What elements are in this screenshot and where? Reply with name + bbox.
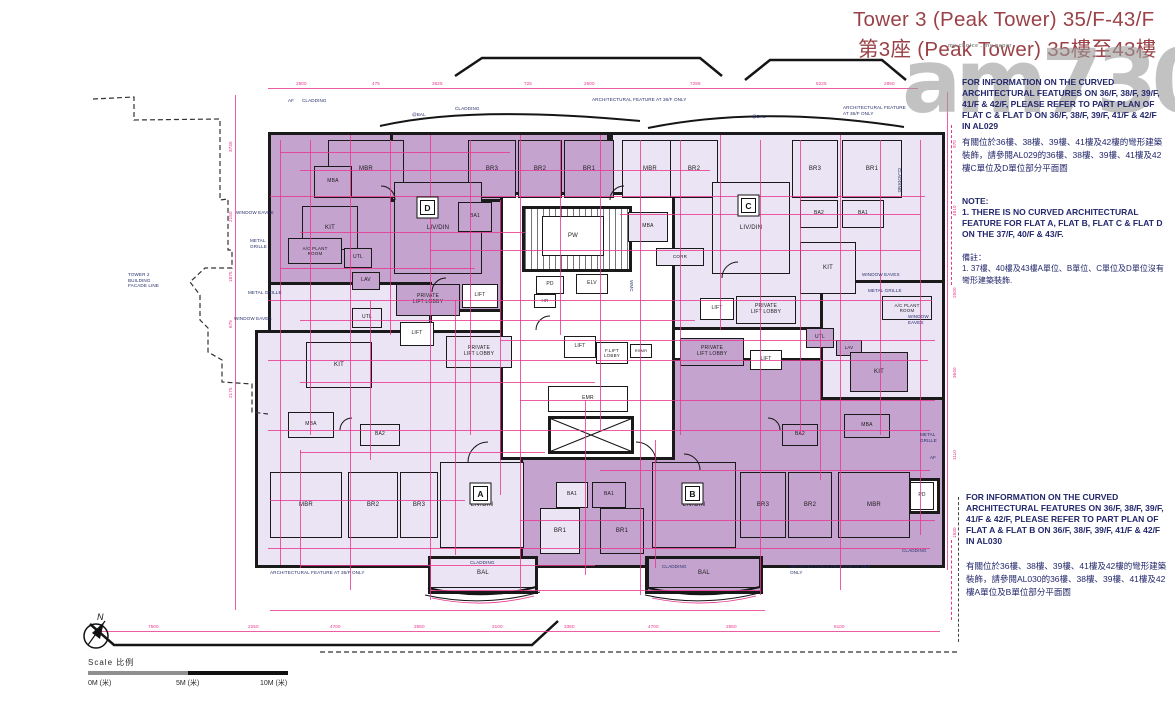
tower2-facade-line [93,97,268,414]
balcony-b-curve [648,587,760,594]
compass-north-label: N [97,612,104,622]
emr-cross [549,418,633,452]
scale-bar-second-half [188,671,288,675]
note-title: NOTE: [962,196,1164,207]
balcony-curve-top-left [380,114,640,126]
door-swing [768,418,780,430]
door-swing [722,262,738,278]
bottom-feature-outline [90,621,558,645]
door-swing [536,316,550,330]
note-connector-black [958,497,959,642]
remark-body: 1. 37樓、40樓及43樓A單位、B單位、C單位及D單位沒有彎形建築裝飾. [962,263,1169,287]
scale-tick-10m: 10M (米) [260,678,287,688]
door-swing [432,278,446,292]
floorplan-page: { "title": { "line1": "Tower 3 (Peak Tow… [0,0,1175,713]
door-swing [684,454,700,470]
note-al029-en: FOR INFORMATION ON THE CURVED ARCHITECTU… [962,77,1164,132]
note-al029-zh: 有關位於36樓、38樓、39樓、41樓及42樓的彎形建築裝飾，請參閱AL029的… [962,136,1169,174]
door-swing [610,186,624,200]
scale-tick-0m: 0M (米) [88,678,111,688]
door-swing [636,442,656,462]
scale-tick-5m: 5M (米) [176,678,199,688]
note-connector-pink [951,125,952,285]
door-swing [381,186,395,200]
note-al030-zh: 有關位於36樓、38樓、39樓、41樓及42樓的彎形建築裝飾，請參閱AL030的… [966,560,1173,598]
note-connector-pink [951,540,952,620]
page-title-en: Tower 3 (Peak Tower) 35/F-43/F [853,8,1154,32]
note-al030-en: FOR INFORMATION ON THE CURVED ARCHITECTU… [966,492,1168,547]
scale-label: Scale 比例 [88,657,134,668]
scale-bar-first-half [88,671,188,675]
note-body: 1. THERE IS NO CURVED ARCHITECTURAL FEAT… [962,207,1164,240]
door-swing [468,442,488,462]
roof-outline-left [455,58,722,76]
balcony-a-curve [428,587,536,594]
balcony-curve-top-right [648,116,904,128]
roof-outline-right [745,60,906,80]
door-swing [340,418,352,430]
